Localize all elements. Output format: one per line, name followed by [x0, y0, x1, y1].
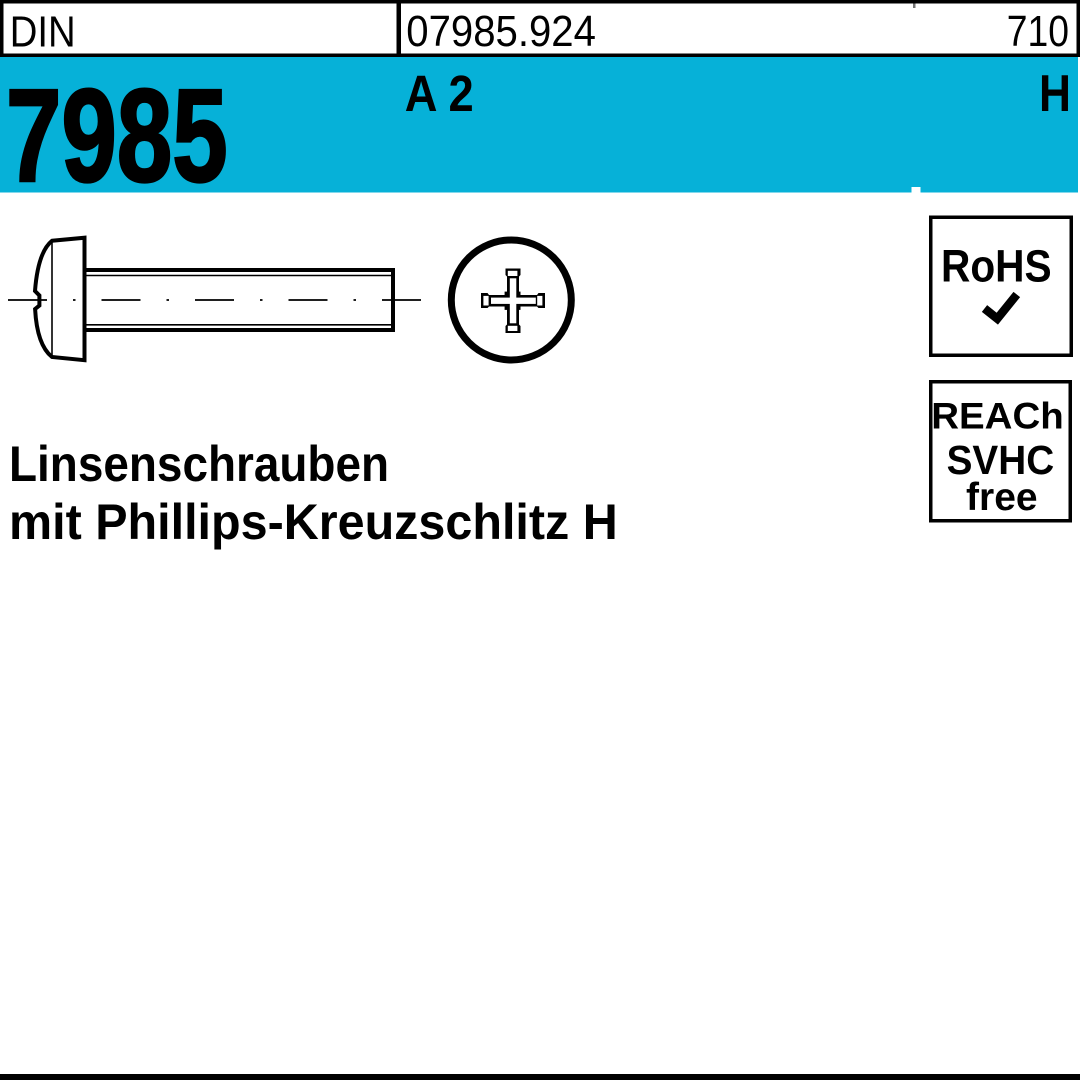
svg-text:DIN: DIN — [10, 7, 76, 56]
svg-text:07985.924: 07985.924 — [406, 6, 596, 55]
svg-text:REACh: REACh — [931, 396, 1064, 437]
svg-text:RoHS: RoHS — [941, 241, 1052, 292]
svg-text:mit Phillips-Kreuzschlitz H: mit Phillips-Kreuzschlitz H — [9, 494, 618, 550]
svg-text:7985: 7985 — [6, 61, 228, 209]
svg-text:710: 710 — [1007, 6, 1069, 56]
svg-text:H: H — [1039, 65, 1071, 123]
svg-text:Linsenschrauben: Linsenschrauben — [9, 436, 389, 493]
svg-text:free: free — [966, 476, 1038, 519]
svg-text:A 2: A 2 — [405, 66, 474, 123]
